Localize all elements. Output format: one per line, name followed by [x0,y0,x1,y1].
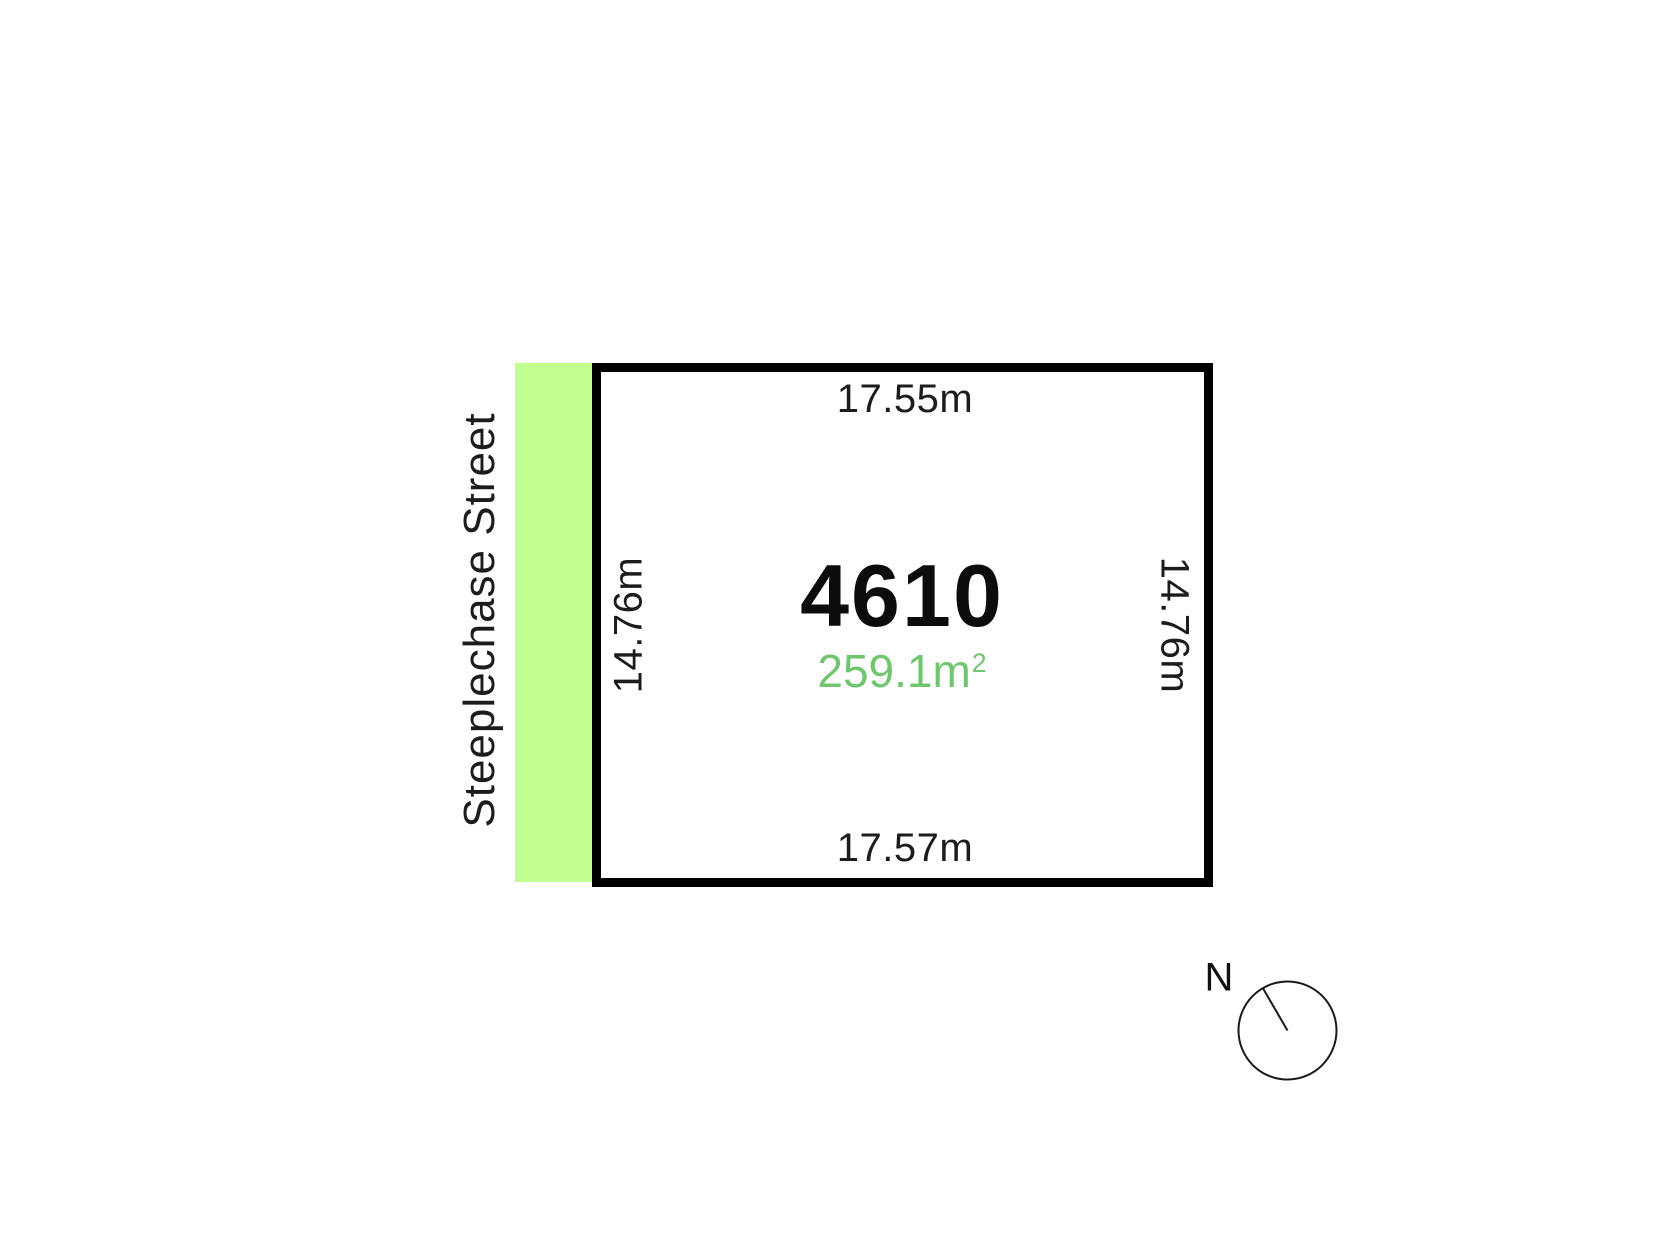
dimension-right: 14.76m [1152,557,1197,693]
compass-dial-icon [1237,980,1338,1081]
lot-area-exponent: 2 [972,648,987,679]
lot-number: 4610 [800,545,1004,647]
dimension-top: 17.55m [837,377,973,422]
street-strip [515,363,592,882]
dimension-bottom: 17.57m [837,826,973,871]
lot-area-value: 259.1m [817,645,970,697]
street-name-label: Steeplechase Street [455,412,505,827]
compass-north-label: N [1205,956,1234,1001]
dimension-left: 14.76m [607,557,652,693]
lot-area: 259.1m2 [817,644,986,698]
lot-plan-canvas: Steeplechase Street 17.55m 17.57m 14.76m… [0,0,1668,1251]
